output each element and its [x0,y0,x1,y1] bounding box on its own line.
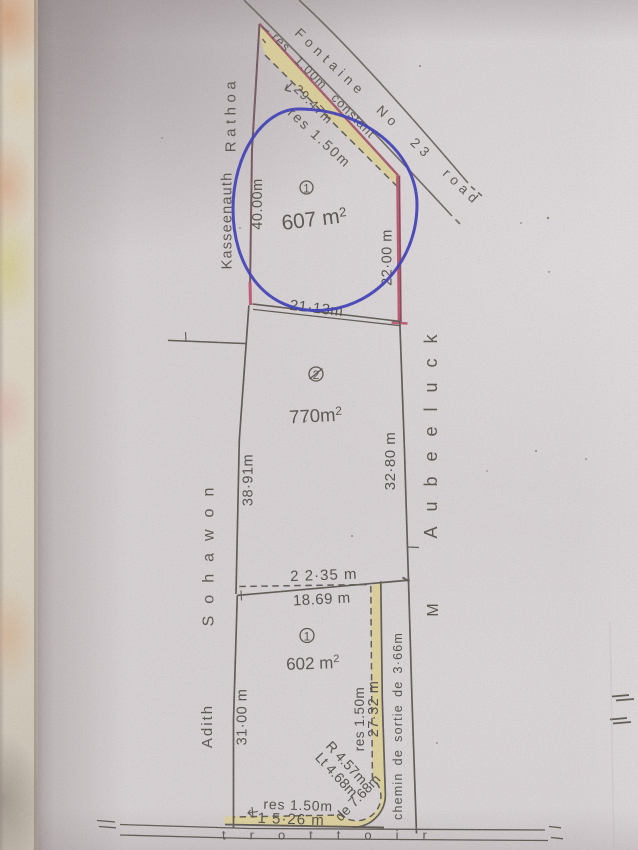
svg-text:Aubeeluck: Aubeeluck [421,319,441,538]
svg-text:2 2·35 m: 2 2·35 m [290,566,358,585]
svg-text:1: 1 [303,182,310,196]
svg-text:602 m2: 602 m2 [286,653,340,674]
svg-text:trottoir: trottoir [222,828,451,843]
svg-text:Kasseenauth: Kasseenauth [220,172,236,270]
svg-text:40.00m: 40.00m [250,178,266,229]
svg-text:Adith: Adith [199,704,216,748]
svg-text:22·00 m: 22·00 m [380,229,396,286]
svg-text:1: 1 [304,630,311,644]
svg-text:res 1.50m: res 1.50m [352,687,367,752]
svg-text:31·00 m: 31·00 m [235,689,251,746]
svg-text:27·32 m: 27·32 m [366,681,382,738]
svg-text:2: 2 [313,368,320,382]
svg-text:770m2: 770m2 [289,404,343,428]
svg-text:Rathoa: Rathoa [223,77,240,152]
svg-text:1 5·26 m: 1 5·26 m [257,810,325,829]
svg-text:Sohawon: Sohawon [201,476,218,627]
svg-text:M: M [425,603,442,616]
svg-text:607 m2: 607 m2 [280,204,348,235]
svg-text:38·91m: 38·91m [241,454,257,506]
svg-text:32·80 m: 32·80 m [382,432,399,491]
svg-text:18.69 m: 18.69 m [293,590,352,610]
svg-text:chemin de sortie de 3·66m: chemin de sortie de 3·66m [391,632,405,820]
